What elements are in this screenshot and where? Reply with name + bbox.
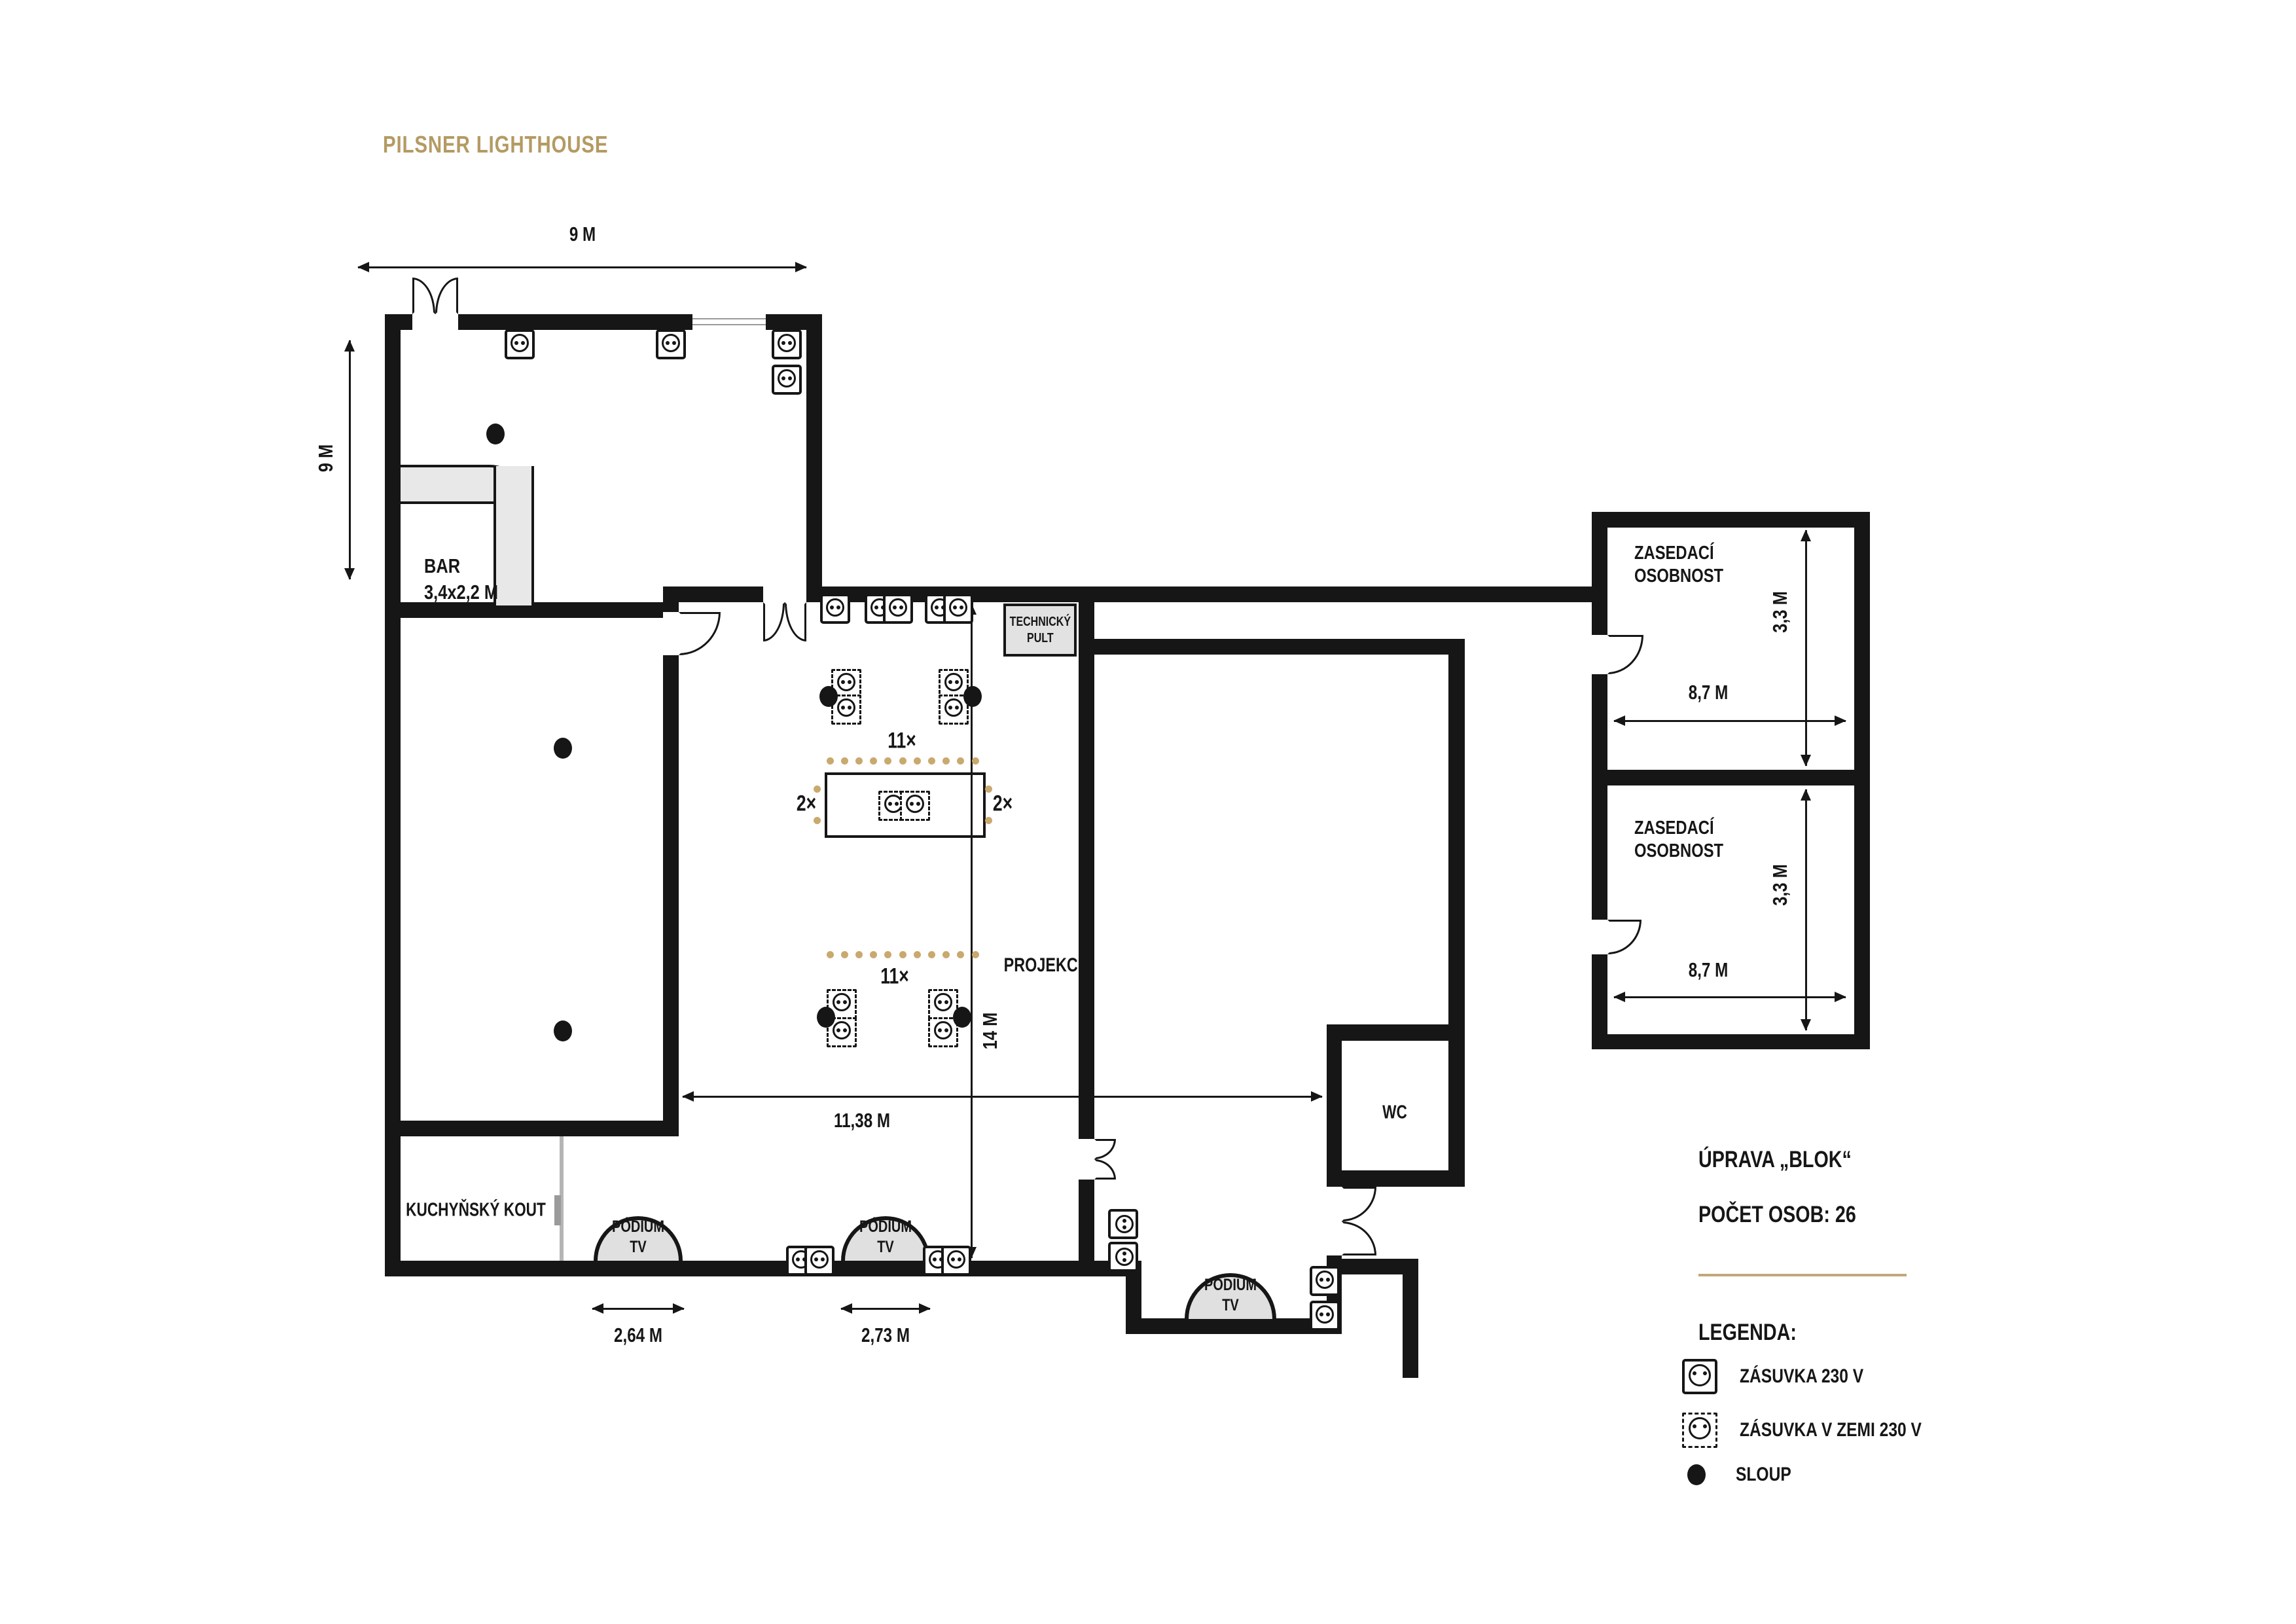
socket-230v-icon xyxy=(820,594,850,624)
legend-item-column: SLOUP xyxy=(1687,1464,1803,1486)
dimension-arrow xyxy=(1614,720,1846,722)
legend-item-label: ZÁSUVKA V ZEMI 230 V xyxy=(1740,1419,1922,1441)
dimension-label: 14 M xyxy=(978,1013,1002,1050)
dimension-label: 2,73 M xyxy=(861,1324,910,1347)
chair-dot xyxy=(870,757,877,765)
dimension-arrow xyxy=(592,1308,684,1310)
wall xyxy=(1327,1024,1342,1190)
dimension-label: 11,38 M xyxy=(834,1109,890,1132)
door-swing xyxy=(785,602,806,641)
wc-label: WC xyxy=(1382,1102,1407,1124)
podium-label: PÓDIUMTV xyxy=(1204,1275,1257,1315)
bar-label: BAR3,4x2,2 M xyxy=(424,553,498,606)
column-dot xyxy=(486,424,505,444)
chair-dot xyxy=(814,785,821,793)
window xyxy=(692,313,766,331)
kitchen-door xyxy=(554,1195,561,1225)
column-dot-icon xyxy=(1687,1464,1706,1485)
podium-tv-3: PÓDIUMTV xyxy=(1185,1273,1276,1319)
chair-dot xyxy=(985,785,992,793)
chair-dot xyxy=(899,757,906,765)
wall xyxy=(1607,770,1870,785)
meeting-room-2-label: ZASEDACÍOSOBNOST xyxy=(1634,817,1723,863)
chair-dot xyxy=(957,757,964,765)
legend-item-floor-socket: ZÁSUVKA V ZEMI 230 V xyxy=(1682,1413,1962,1448)
layout-name: ÚPRAVA „BLOK“ xyxy=(1698,1147,1852,1173)
door-opening xyxy=(1592,635,1607,674)
column-dot xyxy=(817,1007,835,1028)
column-dot xyxy=(554,1020,572,1041)
legend-item-label: ZÁSUVKA 230 V xyxy=(1740,1365,1863,1388)
door-swing xyxy=(679,612,721,655)
chair-dot xyxy=(855,951,863,958)
column-dot xyxy=(819,686,838,707)
wall xyxy=(1094,639,1465,655)
chair-count-top: 11× xyxy=(888,729,916,754)
capacity: POČET OSOB: 26 xyxy=(1698,1202,1856,1228)
door-swing xyxy=(1607,920,1641,954)
tech-desk-label: TECHNICKÝPULT xyxy=(1009,614,1070,646)
wall xyxy=(1592,1034,1870,1049)
door-swing xyxy=(1342,1187,1376,1221)
dimension-arrow xyxy=(1805,530,1807,766)
dimension-arrow xyxy=(349,340,351,579)
dimension-label: 8,7 M xyxy=(1689,958,1728,982)
floor-socket-230v-icon xyxy=(1682,1413,1717,1448)
socket-230v-icon xyxy=(1310,1301,1340,1331)
chair-count-left: 2× xyxy=(797,791,816,817)
chair-dot xyxy=(827,951,834,958)
chair-dot xyxy=(855,757,863,765)
meeting-room-1-label: ZASEDACÍOSOBNOST xyxy=(1634,542,1723,588)
column-dot xyxy=(963,686,982,707)
chair-dot xyxy=(914,757,921,765)
dimension-label: 9 M xyxy=(569,223,596,246)
door-swing xyxy=(1342,1221,1376,1255)
wall xyxy=(1342,1170,1448,1187)
socket-230v-icon xyxy=(883,594,913,624)
socket-230v-icon xyxy=(656,329,686,359)
wall xyxy=(385,1121,679,1136)
podium-tv-2: PÓDIUMTV xyxy=(841,1216,930,1261)
door-opening xyxy=(763,586,806,602)
socket-230v-icon xyxy=(943,594,973,624)
legend-item-socket: ZÁSUVKA 230 V xyxy=(1682,1359,1891,1394)
chair-dot xyxy=(942,757,950,765)
wall xyxy=(1327,1024,1465,1041)
floor-plan-canvas: PILSNER LIGHTHOUSE xyxy=(0,0,2296,1624)
chair-dot xyxy=(928,757,935,765)
wall xyxy=(1448,655,1465,1187)
chair-dot xyxy=(870,951,877,958)
chair-dot xyxy=(957,951,964,958)
chair-dot xyxy=(928,951,935,958)
socket-230v-icon xyxy=(1682,1359,1717,1394)
dimension-arrow xyxy=(841,1308,930,1310)
chair-dot xyxy=(899,951,906,958)
wall xyxy=(1342,1259,1418,1274)
dimension-label: 9 M xyxy=(314,444,338,472)
chair-dot xyxy=(841,757,848,765)
floor-socket-icon xyxy=(900,791,930,821)
podium-label: PÓDIUMTV xyxy=(859,1217,912,1257)
projection-label: PROJEKCE xyxy=(1004,954,1088,977)
divider-line xyxy=(1698,1274,1907,1276)
door-swing xyxy=(1094,1139,1116,1159)
dimension-arrow xyxy=(683,1096,1322,1098)
door-opening xyxy=(663,612,679,655)
door-opening xyxy=(412,314,458,330)
socket-230v-icon xyxy=(1108,1242,1138,1272)
wall xyxy=(1403,1274,1418,1378)
chair-dot xyxy=(914,951,921,958)
door-opening xyxy=(1327,1187,1342,1255)
chair-dot xyxy=(884,951,891,958)
dimension-label: 8,7 M xyxy=(1689,681,1728,704)
wall xyxy=(1592,512,1870,528)
wall xyxy=(1592,512,1607,1049)
podium-tv-1: PÓDIUMTV xyxy=(594,1216,683,1261)
door-swing xyxy=(1607,635,1643,674)
dimension-arrow xyxy=(1614,996,1846,998)
door-swing xyxy=(412,278,435,314)
dimension-label: 3,3 M xyxy=(1768,864,1792,906)
column-dot xyxy=(554,738,572,759)
chair-count-bottom: 11× xyxy=(880,964,909,990)
chair-dot xyxy=(841,951,848,958)
tech-desk: TECHNICKÝPULT xyxy=(1003,604,1077,657)
socket-230v-icon xyxy=(505,329,535,359)
socket-230v-icon xyxy=(804,1246,834,1276)
chair-dot xyxy=(884,757,891,765)
socket-230v-icon xyxy=(941,1246,971,1276)
legend-item-label: SLOUP xyxy=(1736,1464,1791,1486)
chair-dot xyxy=(814,817,821,824)
socket-230v-icon xyxy=(1108,1209,1138,1239)
dimension-label: 3,3 M xyxy=(1768,591,1792,633)
dimension-arrow xyxy=(358,266,806,268)
wall xyxy=(385,1261,1141,1276)
chair-dot xyxy=(972,951,979,958)
door-swing xyxy=(1094,1159,1116,1180)
chair-count-right: 2× xyxy=(993,791,1013,817)
chair-dot xyxy=(972,757,979,765)
socket-230v-icon xyxy=(1310,1266,1340,1296)
socket-230v-icon xyxy=(772,329,802,359)
legend-heading: LEGENDA: xyxy=(1698,1320,1797,1346)
bar-counter xyxy=(493,466,534,605)
page-title: PILSNER LIGHTHOUSE xyxy=(383,131,608,158)
door-opening xyxy=(1592,920,1607,954)
wall xyxy=(663,602,679,1136)
door-swing xyxy=(763,602,785,641)
chair-dot xyxy=(942,951,950,958)
chair-dot xyxy=(985,817,992,824)
dimension-label: 2,64 M xyxy=(614,1324,662,1347)
door-opening xyxy=(1079,1139,1094,1180)
door-swing xyxy=(435,278,458,314)
column-dot xyxy=(953,1007,971,1028)
kitchen-label: KUCHYŇSKÝ KOUT xyxy=(406,1200,546,1221)
dimension-arrow xyxy=(1805,789,1807,1030)
chair-dot xyxy=(827,757,834,765)
wall xyxy=(806,314,822,602)
socket-230v-icon xyxy=(772,365,802,395)
podium-label: PÓDIUMTV xyxy=(612,1217,664,1257)
